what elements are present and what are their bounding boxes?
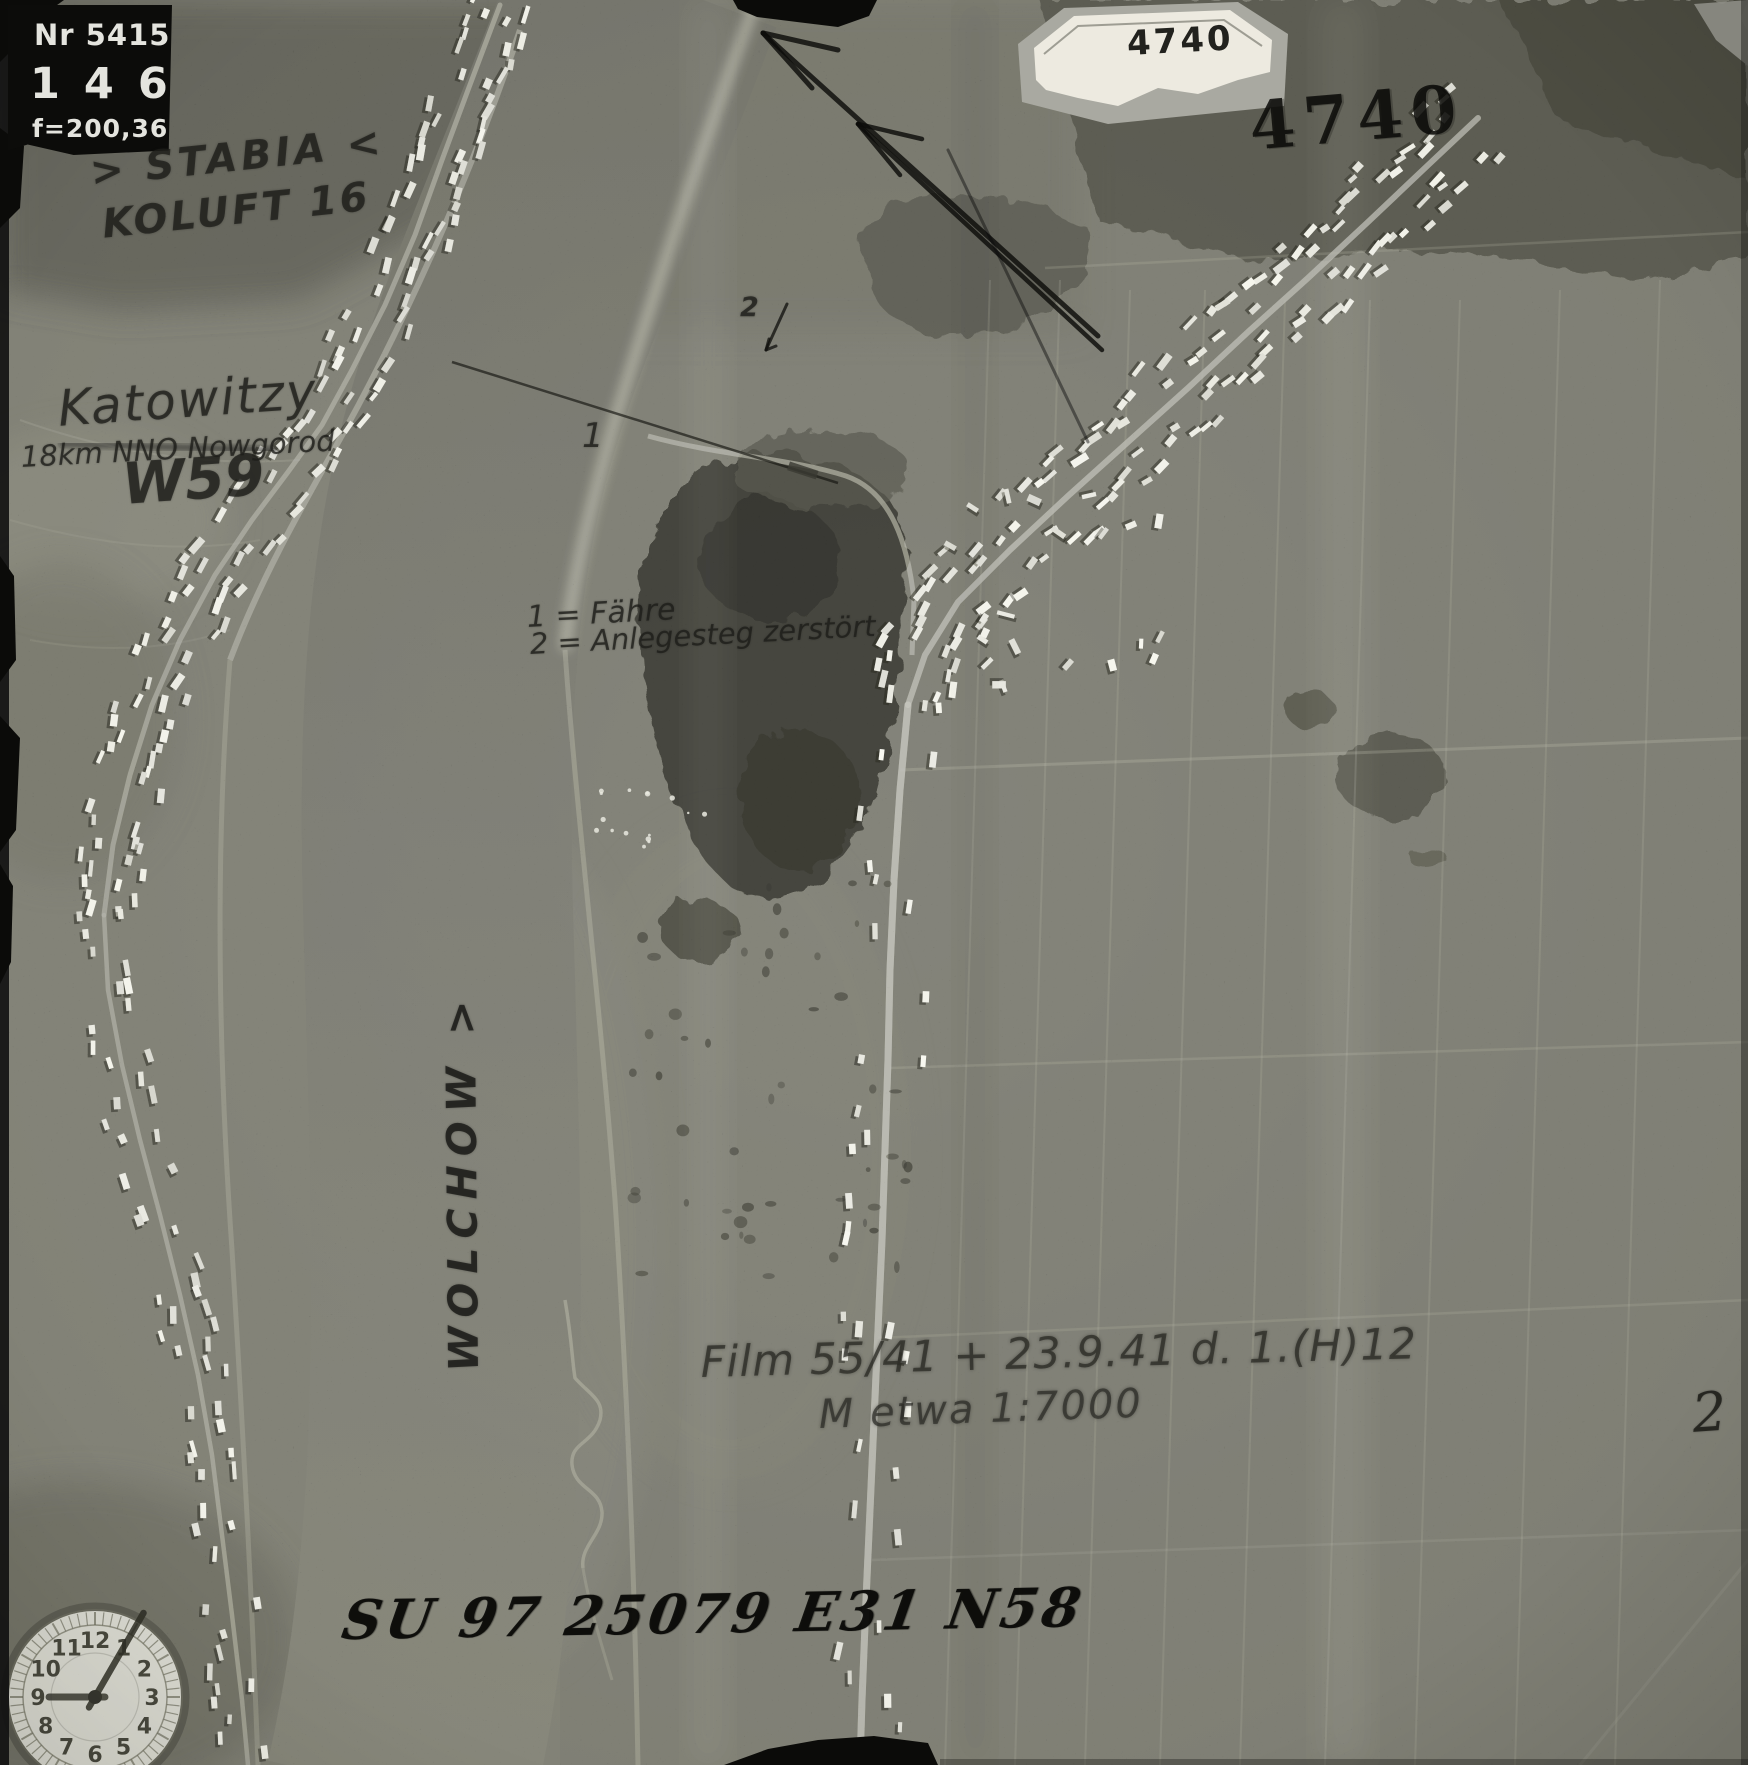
marker-2: 2 xyxy=(740,292,759,323)
photo-number: Nr 5415 xyxy=(34,18,172,52)
focal-length: f=200,36 xyxy=(32,114,172,143)
ferry-route-line xyxy=(452,362,838,483)
ferry-barge xyxy=(787,462,818,480)
print-number: 2 xyxy=(1690,1380,1729,1445)
camera-data-plate: Nr 5415 146 f=200,36 xyxy=(8,5,172,155)
river-name-label: WOLCHOW > xyxy=(437,991,488,1372)
marker-1: 1 xyxy=(582,416,604,456)
pencil-marks-layer xyxy=(0,0,1748,1765)
sortie-label-number: 4740 xyxy=(1126,18,1235,64)
frame-counter: 146 xyxy=(30,59,172,109)
target-code: W59 xyxy=(120,442,266,518)
marker2-arrow xyxy=(766,304,787,350)
grease-arrows xyxy=(763,33,1102,442)
aerial-photo: 123456789101112 xyxy=(0,0,1748,1765)
grid-reference: SU 97 25079 E31 N58 xyxy=(338,1575,1089,1652)
